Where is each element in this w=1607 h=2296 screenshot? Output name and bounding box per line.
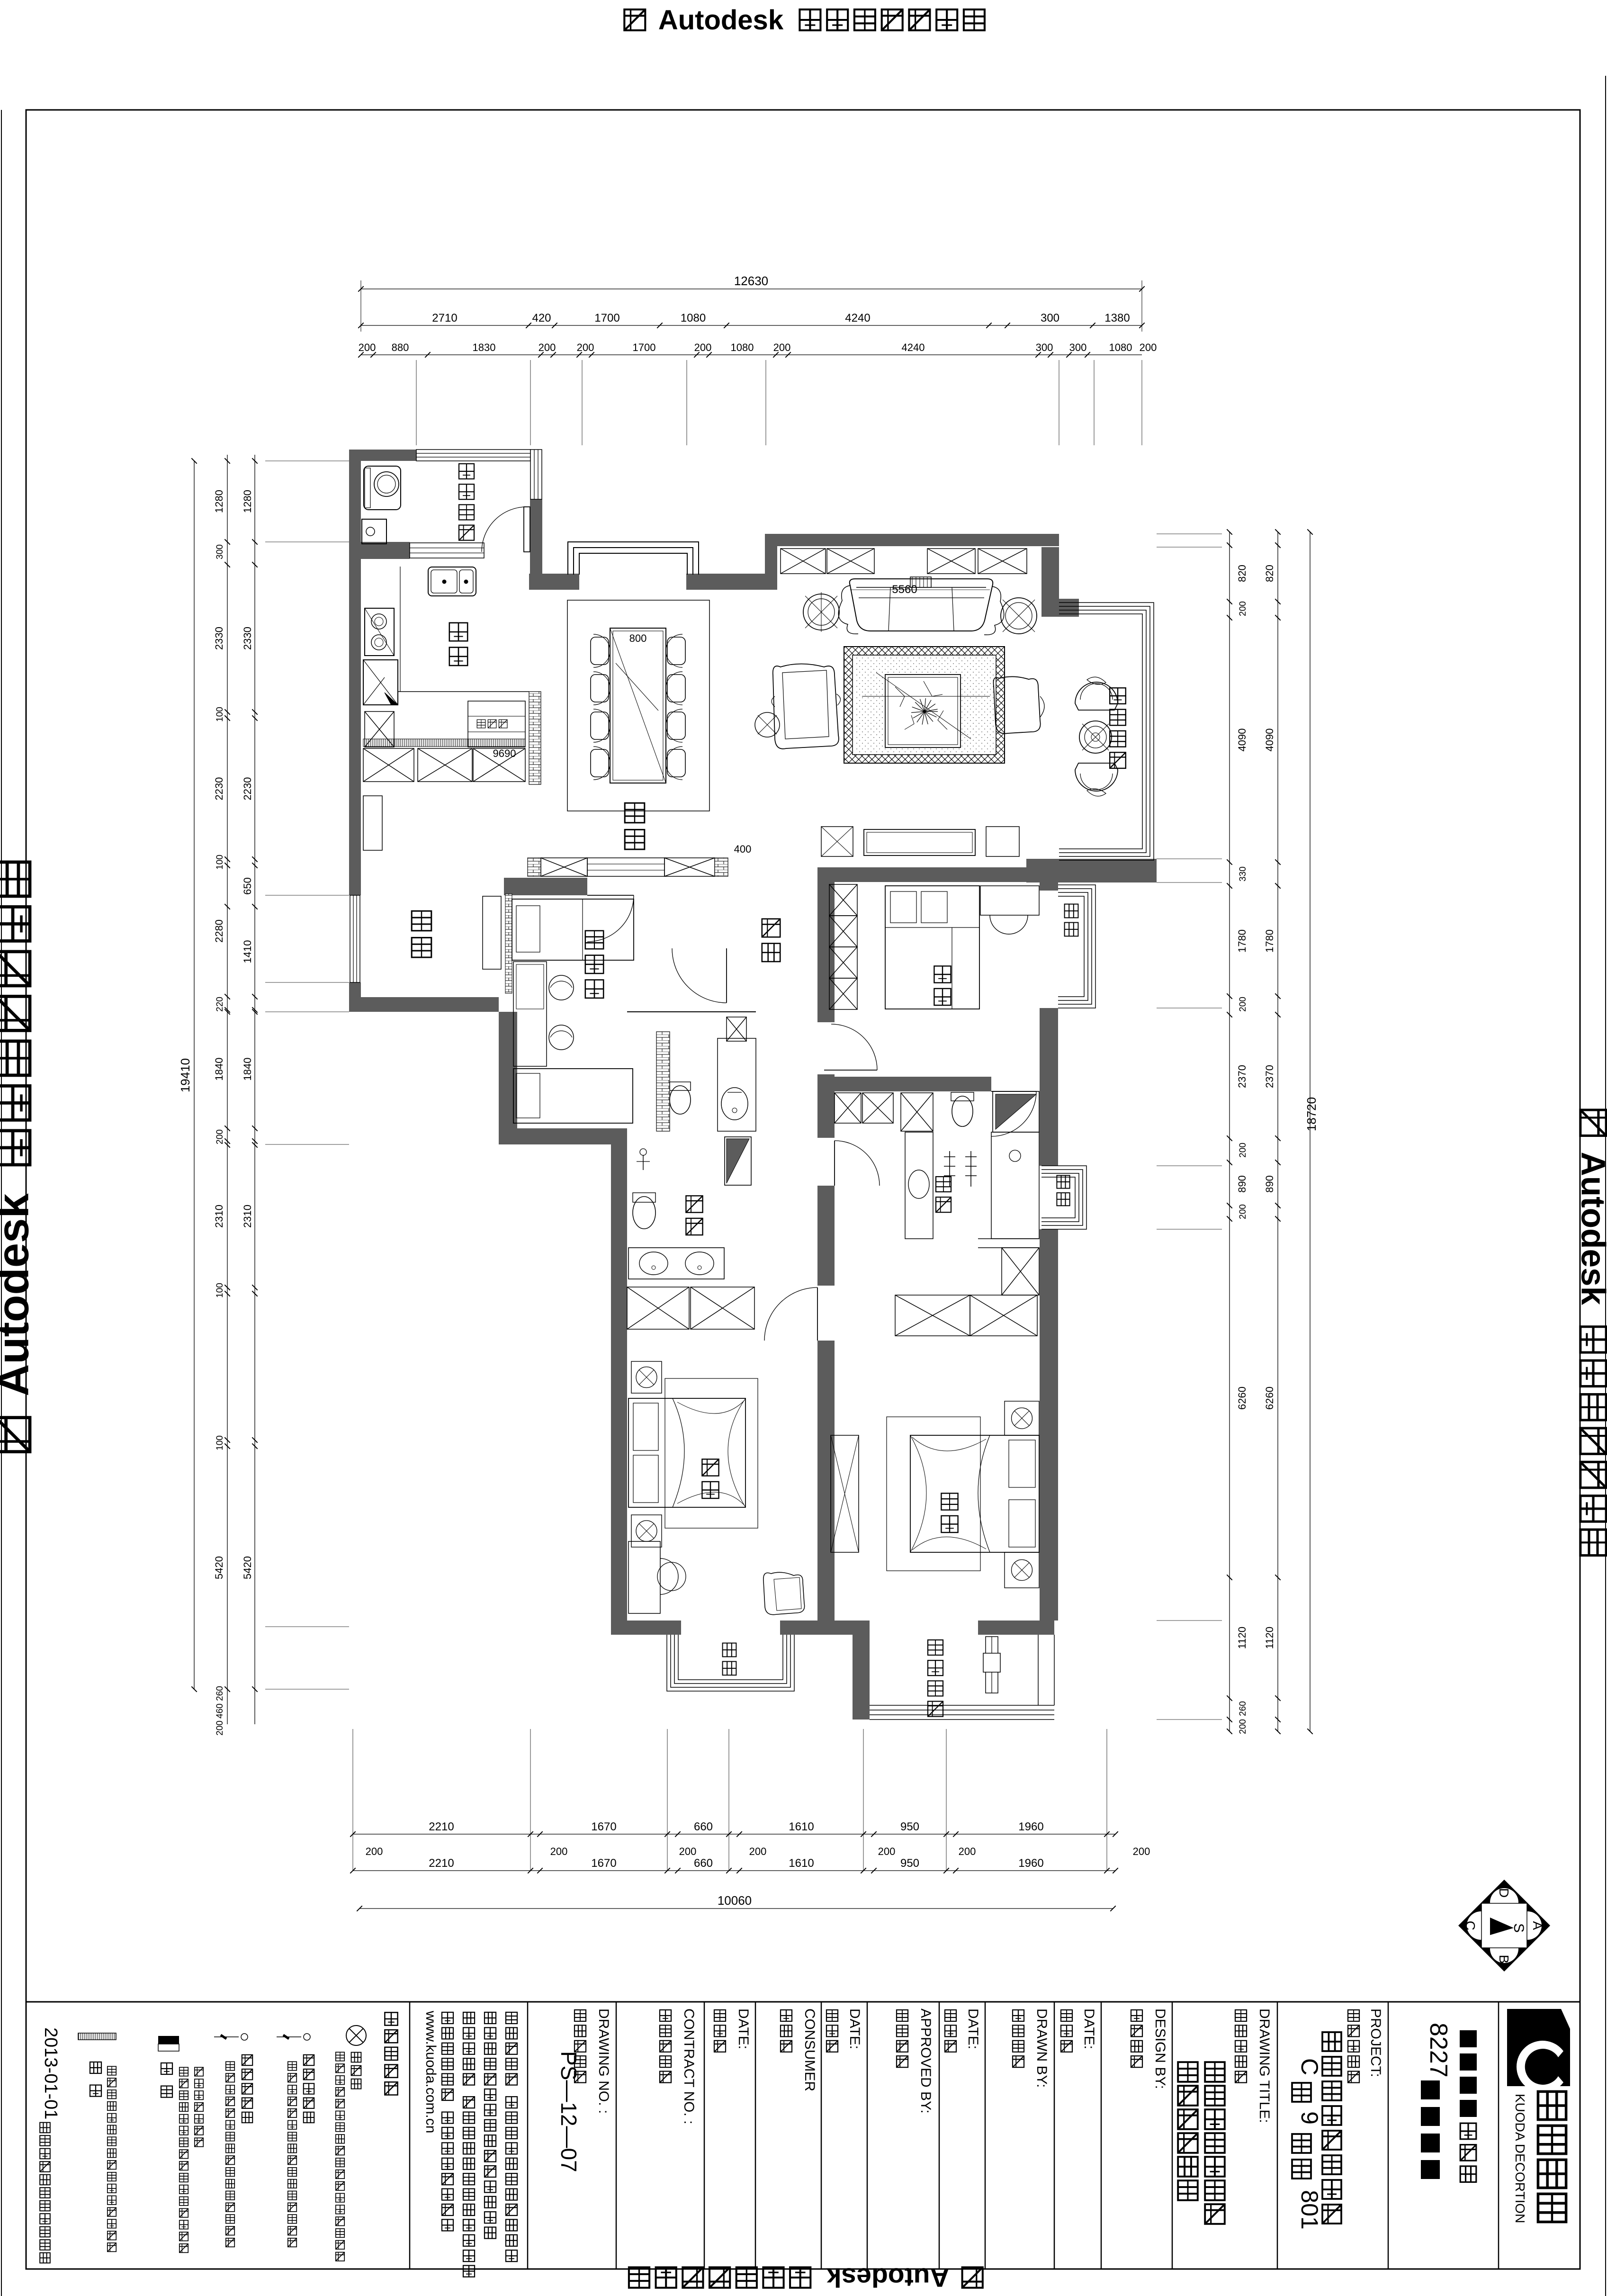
svg-text:1410: 1410 — [242, 940, 253, 963]
svg-text:A: A — [1530, 1921, 1545, 1930]
svg-text:100: 100 — [215, 707, 225, 722]
svg-text:420: 420 — [532, 312, 551, 324]
svg-text:660: 660 — [694, 1857, 713, 1870]
svg-text:890: 890 — [1264, 1175, 1275, 1193]
svg-text:950: 950 — [900, 1820, 919, 1833]
svg-text:C: C — [1296, 2058, 1323, 2075]
svg-text:D: D — [1497, 1888, 1511, 1898]
svg-text:www.kuoda.com.cn: www.kuoda.com.cn — [423, 2010, 439, 2133]
svg-text:DATE:: DATE: — [965, 2008, 981, 2049]
svg-text:200: 200 — [1133, 1846, 1150, 1857]
svg-text:200: 200 — [1238, 1143, 1248, 1158]
svg-text:880: 880 — [392, 342, 409, 353]
svg-text:1840: 1840 — [242, 1058, 253, 1081]
svg-text:CONSUMER: CONSUMER — [802, 2008, 817, 2091]
svg-text:KUODA DECORTION: KUODA DECORTION — [1513, 2094, 1527, 2223]
svg-text:DRAWN BY:: DRAWN BY: — [1034, 2008, 1050, 2088]
svg-text:2230: 2230 — [242, 777, 253, 801]
svg-text:4090: 4090 — [1264, 729, 1275, 752]
svg-text:4240: 4240 — [902, 342, 925, 353]
svg-text:1700: 1700 — [633, 342, 656, 353]
svg-text:1280: 1280 — [213, 490, 225, 513]
svg-text:300: 300 — [1036, 342, 1053, 353]
svg-text:DATE:: DATE: — [736, 2008, 751, 2049]
svg-text:DATE:: DATE: — [847, 2008, 862, 2049]
svg-text:200: 200 — [1238, 601, 1248, 616]
svg-text:2210: 2210 — [429, 1820, 454, 1833]
svg-text:200: 200 — [1238, 997, 1248, 1012]
svg-text:950: 950 — [900, 1857, 919, 1870]
svg-text:12630: 12630 — [734, 274, 768, 288]
svg-text:200: 200 — [878, 1846, 896, 1857]
svg-text:801: 801 — [1296, 2190, 1323, 2229]
svg-text:1830: 1830 — [473, 342, 496, 353]
svg-text:220: 220 — [215, 997, 225, 1012]
svg-text:1670: 1670 — [591, 1820, 616, 1833]
svg-text:2370: 2370 — [1264, 1065, 1275, 1088]
svg-text:200: 200 — [215, 1720, 225, 1736]
svg-text:C: C — [1463, 1921, 1478, 1930]
svg-text:DRAWING TITLE:: DRAWING TITLE: — [1257, 2008, 1272, 2123]
svg-text:S: S — [1511, 1923, 1526, 1933]
svg-text:660: 660 — [694, 1820, 713, 1833]
svg-text:1120: 1120 — [1236, 1627, 1248, 1649]
svg-text:330: 330 — [1238, 866, 1248, 882]
svg-text:2330: 2330 — [213, 627, 225, 650]
svg-text:2710: 2710 — [432, 312, 457, 324]
svg-text:1610: 1610 — [789, 1820, 814, 1833]
svg-text:1960: 1960 — [1018, 1820, 1043, 1833]
svg-text:460: 460 — [215, 1703, 225, 1719]
svg-text:200: 200 — [1238, 1204, 1248, 1219]
svg-text:B: B — [1497, 1955, 1511, 1964]
svg-text:1380: 1380 — [1104, 312, 1130, 324]
svg-text:2330: 2330 — [242, 627, 253, 650]
svg-text:200: 200 — [366, 1846, 383, 1857]
svg-text:200: 200 — [1238, 1719, 1248, 1734]
svg-text:19410: 19410 — [178, 1058, 192, 1092]
svg-text:DRAWING NO. :: DRAWING NO. : — [596, 2008, 611, 2114]
svg-text:2280: 2280 — [213, 919, 225, 943]
svg-text:5420: 5420 — [213, 1556, 225, 1579]
svg-text:200: 200 — [577, 342, 594, 353]
svg-text:18720: 18720 — [1304, 1097, 1319, 1131]
svg-text:1610: 1610 — [789, 1857, 814, 1870]
svg-text:800: 800 — [629, 632, 647, 644]
svg-text:890: 890 — [1236, 1175, 1248, 1193]
svg-text:200: 200 — [359, 342, 376, 353]
svg-text:1080: 1080 — [731, 342, 754, 353]
svg-text:200: 200 — [550, 1846, 568, 1857]
svg-text:4090: 4090 — [1236, 729, 1248, 752]
svg-text:Autodesk: Autodesk — [0, 1193, 37, 1396]
svg-text:Autodesk: Autodesk — [826, 2262, 950, 2293]
svg-text:1960: 1960 — [1018, 1857, 1043, 1870]
svg-text:820: 820 — [1264, 565, 1275, 582]
svg-text:APPROVED BY:: APPROVED BY: — [918, 2008, 934, 2114]
svg-text:2210: 2210 — [429, 1857, 454, 1870]
svg-text:2370: 2370 — [1236, 1065, 1248, 1088]
svg-text:4240: 4240 — [845, 312, 870, 324]
svg-text:650: 650 — [242, 877, 253, 895]
svg-text:300: 300 — [1069, 342, 1087, 353]
svg-text:PROJECT:: PROJECT: — [1368, 2008, 1383, 2077]
svg-text:200: 200 — [679, 1846, 697, 1857]
svg-text:9690: 9690 — [493, 747, 516, 759]
svg-text:8227: 8227 — [1425, 2023, 1452, 2078]
svg-text:DATE:: DATE: — [1081, 2008, 1097, 2049]
svg-text:1780: 1780 — [1236, 929, 1248, 953]
svg-text:5560: 5560 — [892, 583, 917, 596]
svg-text:200: 200 — [959, 1846, 976, 1857]
svg-text:200: 200 — [215, 1129, 225, 1144]
svg-text:5420: 5420 — [242, 1556, 253, 1579]
svg-text:2230: 2230 — [213, 777, 225, 801]
svg-text:1780: 1780 — [1264, 929, 1275, 953]
svg-text:100: 100 — [215, 1435, 225, 1450]
svg-text:Autodesk: Autodesk — [658, 5, 784, 36]
svg-text:200: 200 — [539, 342, 556, 353]
svg-text:1080: 1080 — [681, 312, 706, 324]
svg-text:300: 300 — [1041, 312, 1059, 324]
svg-text:1840: 1840 — [213, 1058, 225, 1081]
svg-text:DESIGN BY:: DESIGN BY: — [1152, 2008, 1168, 2089]
svg-text:6260: 6260 — [1264, 1387, 1275, 1410]
svg-text:100: 100 — [215, 855, 225, 870]
svg-text:CONTRACT NO. :: CONTRACT NO. : — [681, 2008, 697, 2124]
svg-text:9: 9 — [1296, 2111, 1323, 2125]
svg-text:2013-01-01: 2013-01-01 — [41, 2027, 61, 2119]
svg-text:1080: 1080 — [1109, 342, 1132, 353]
svg-text:1670: 1670 — [591, 1857, 616, 1870]
svg-text:300: 300 — [215, 544, 225, 559]
svg-text:200: 200 — [694, 342, 712, 353]
svg-text:400: 400 — [734, 843, 752, 855]
svg-text:Autodesk: Autodesk — [1574, 1152, 1607, 1306]
svg-text:10060: 10060 — [718, 1893, 752, 1908]
svg-text:1120: 1120 — [1264, 1627, 1275, 1649]
svg-text:1700: 1700 — [594, 312, 619, 324]
svg-text:200: 200 — [1140, 342, 1157, 353]
svg-text:2310: 2310 — [242, 1205, 253, 1228]
svg-text:100: 100 — [215, 1283, 225, 1298]
svg-text:200: 200 — [773, 342, 791, 353]
svg-text:1280: 1280 — [242, 490, 253, 513]
svg-text:PS—12—07: PS—12—07 — [557, 2051, 581, 2172]
svg-text:820: 820 — [1236, 565, 1248, 582]
svg-text:6260: 6260 — [1236, 1387, 1248, 1410]
svg-text:260: 260 — [1238, 1701, 1248, 1716]
svg-text:2310: 2310 — [213, 1205, 225, 1228]
svg-text:260: 260 — [215, 1686, 225, 1701]
svg-text:200: 200 — [749, 1846, 767, 1857]
